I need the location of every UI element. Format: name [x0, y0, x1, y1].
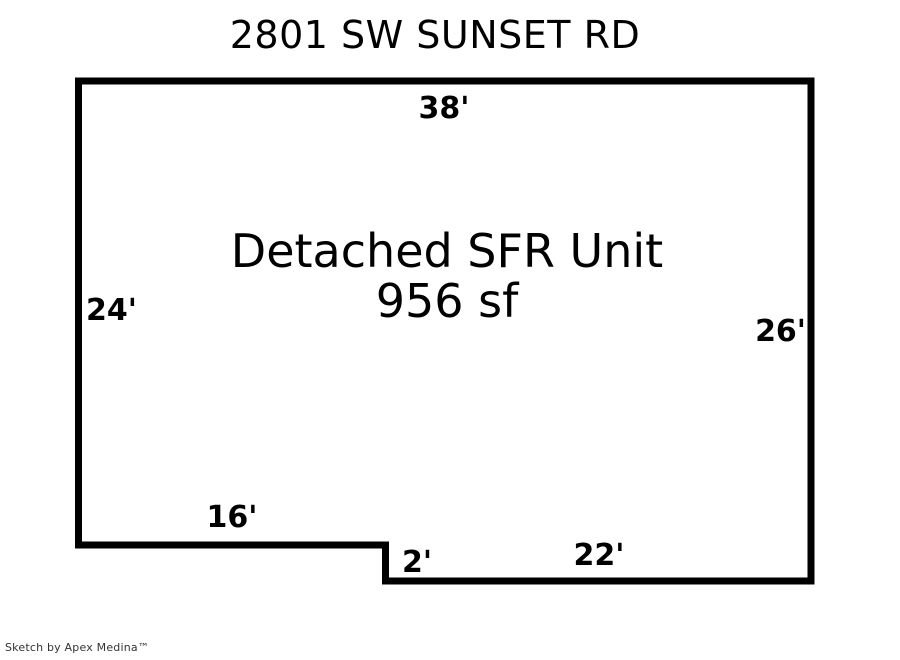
- dimension-left-wall: 24': [86, 296, 137, 326]
- sketch-attribution: Sketch by Apex Medina™: [5, 641, 149, 654]
- dimension-right-wall: 26': [755, 317, 806, 347]
- building-perimeter-polygon: [79, 81, 812, 581]
- dimension-bottom-left-wall: 16': [207, 503, 258, 533]
- unit-type-label: Detached SFR Unit: [0, 226, 894, 276]
- floorplan-sketch-canvas: 2801 SW SUNSET RD Detached SFR Unit 956 …: [0, 0, 900, 660]
- dimension-top-wall: 38': [419, 94, 470, 124]
- dimension-step-wall: 2': [402, 548, 432, 578]
- dimension-bottom-right-wall: 22': [574, 541, 625, 571]
